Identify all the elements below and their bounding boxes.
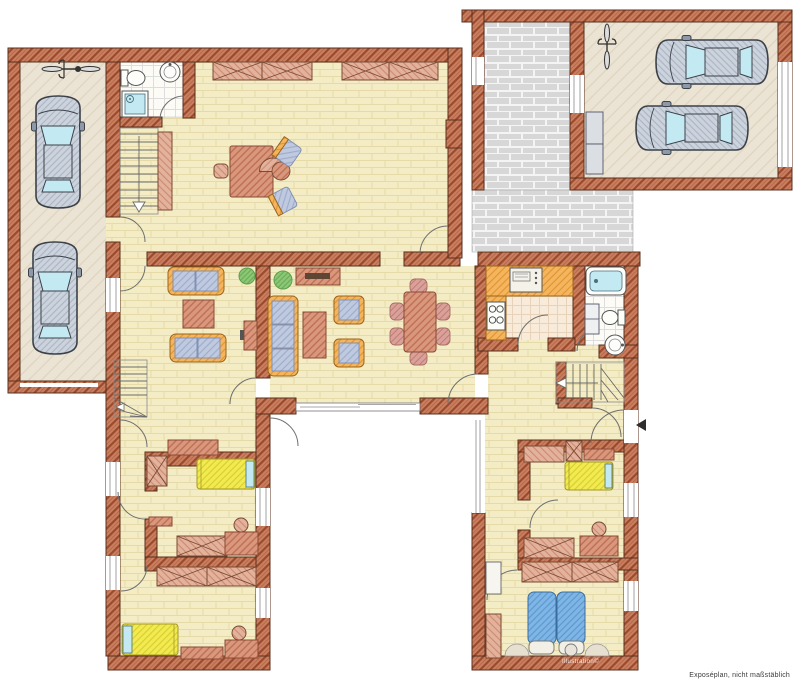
wall-right-wing-west xyxy=(472,513,485,656)
plant-icon xyxy=(274,271,292,289)
wall-wc-east xyxy=(183,62,195,118)
armchair-icon xyxy=(334,296,364,324)
sideboard-icon xyxy=(213,62,262,80)
stove-icon xyxy=(487,302,505,330)
wall-kitchen-south-b xyxy=(548,338,575,351)
chair-icon xyxy=(232,626,246,640)
wall-dining-south-east xyxy=(420,398,488,414)
wall-top-right xyxy=(462,10,792,22)
bathtub-icon xyxy=(586,267,626,295)
wardrobe-icon xyxy=(524,538,574,558)
sliding-door-icon xyxy=(296,403,420,411)
chair-icon xyxy=(234,518,248,532)
washbasin-icon xyxy=(160,62,180,82)
car-icon xyxy=(32,96,85,208)
wall-wc-south xyxy=(120,117,162,127)
wardrobe-icon xyxy=(524,446,564,462)
wall-office-east xyxy=(448,48,462,258)
dining-chair-icon xyxy=(410,279,427,293)
oven-icon xyxy=(510,268,542,292)
sofa-icon xyxy=(170,334,226,362)
single-bed-icon xyxy=(197,459,255,489)
cabinet-icon xyxy=(486,562,501,594)
dining-chair-icon xyxy=(436,328,450,345)
window-icon xyxy=(106,556,120,590)
wall-middle-a xyxy=(147,252,380,266)
watermark-text: Illustration© xyxy=(562,659,599,665)
glazed-front xyxy=(472,420,485,513)
window-icon xyxy=(778,62,792,167)
shelf-icon xyxy=(584,449,614,460)
window-icon xyxy=(472,57,484,85)
dining-chair-icon xyxy=(390,328,404,345)
toilet-icon xyxy=(602,310,625,325)
washbasin-icon xyxy=(605,335,625,355)
car-icon xyxy=(29,242,82,354)
garage-door-slit xyxy=(20,383,98,387)
shelf-icon xyxy=(149,517,172,526)
single-bed-icon xyxy=(122,624,178,655)
wardrobe-icon xyxy=(566,441,582,461)
wall-kitchen-north xyxy=(478,252,640,266)
garage-shelf-icon xyxy=(586,112,603,174)
dining-table-icon xyxy=(404,292,436,352)
sideboard-icon xyxy=(342,62,389,80)
dining-chair-icon xyxy=(436,303,450,320)
plan-disclaimer-note: Exposéplan, nicht maßstäblich xyxy=(689,672,790,679)
sideboard-icon xyxy=(389,62,438,80)
wardrobe-icon xyxy=(147,456,167,486)
dining-chair-icon xyxy=(390,303,404,320)
armchair-icon xyxy=(334,339,364,367)
sideboard-icon xyxy=(168,440,218,455)
car-icon xyxy=(656,36,768,89)
wardrobe-icon xyxy=(157,567,207,586)
doorway-floor xyxy=(380,252,404,266)
coffee-table-icon xyxy=(303,312,326,358)
stool-icon xyxy=(214,164,228,178)
window-icon xyxy=(624,483,638,517)
plant-icon xyxy=(239,268,255,284)
coffee-table-icon xyxy=(183,300,214,328)
paved-courtyard-lower xyxy=(472,190,633,252)
window-icon xyxy=(256,588,270,618)
floor-plan-canvas: Illustration© Exposéplan, nicht maßstäbl… xyxy=(0,0,794,691)
toilet-icon xyxy=(121,70,145,86)
wall-top xyxy=(8,48,462,62)
bath-cabinet-icon xyxy=(585,304,599,334)
dining-chair-icon xyxy=(410,351,427,365)
entry-door-opening xyxy=(624,410,638,443)
chair-icon xyxy=(592,522,606,536)
door-swing-icon xyxy=(270,418,298,446)
wall-dining-south-west xyxy=(256,398,296,414)
floor-plan-drawing xyxy=(0,0,794,691)
wall-courtyard-west xyxy=(472,10,484,190)
wall-garage-right-south xyxy=(570,178,792,190)
radiator-icon xyxy=(446,120,462,148)
wardrobe-icon xyxy=(522,562,572,582)
sofa-icon xyxy=(268,296,298,376)
sofa-icon xyxy=(168,267,224,295)
window-icon xyxy=(256,488,270,526)
hallway-left-wing xyxy=(168,440,218,455)
wardrobe-icon xyxy=(207,567,256,586)
wardrobe-icon xyxy=(572,562,618,582)
passage-floor xyxy=(120,252,147,266)
kitchen-floor xyxy=(506,294,575,340)
wall-garage-left-west xyxy=(8,62,20,393)
paved-courtyard-upper xyxy=(484,22,584,190)
car-icon xyxy=(636,102,748,155)
wall-kitchen-bath xyxy=(573,266,585,345)
dresser-icon xyxy=(181,647,223,659)
wardrobe-icon xyxy=(177,536,227,556)
shower-icon xyxy=(122,91,148,117)
window-icon xyxy=(570,75,584,113)
garage-door-passage xyxy=(106,217,120,242)
cabinet-icon xyxy=(486,614,501,658)
wall-garage-left-east-a xyxy=(106,62,120,217)
window-icon xyxy=(624,581,638,611)
stair-rail xyxy=(158,132,172,210)
sideboard-icon xyxy=(262,62,312,80)
single-bed-icon xyxy=(565,462,613,490)
sideboard-icon xyxy=(296,268,340,285)
window-icon xyxy=(106,278,120,312)
window-icon xyxy=(106,462,120,496)
